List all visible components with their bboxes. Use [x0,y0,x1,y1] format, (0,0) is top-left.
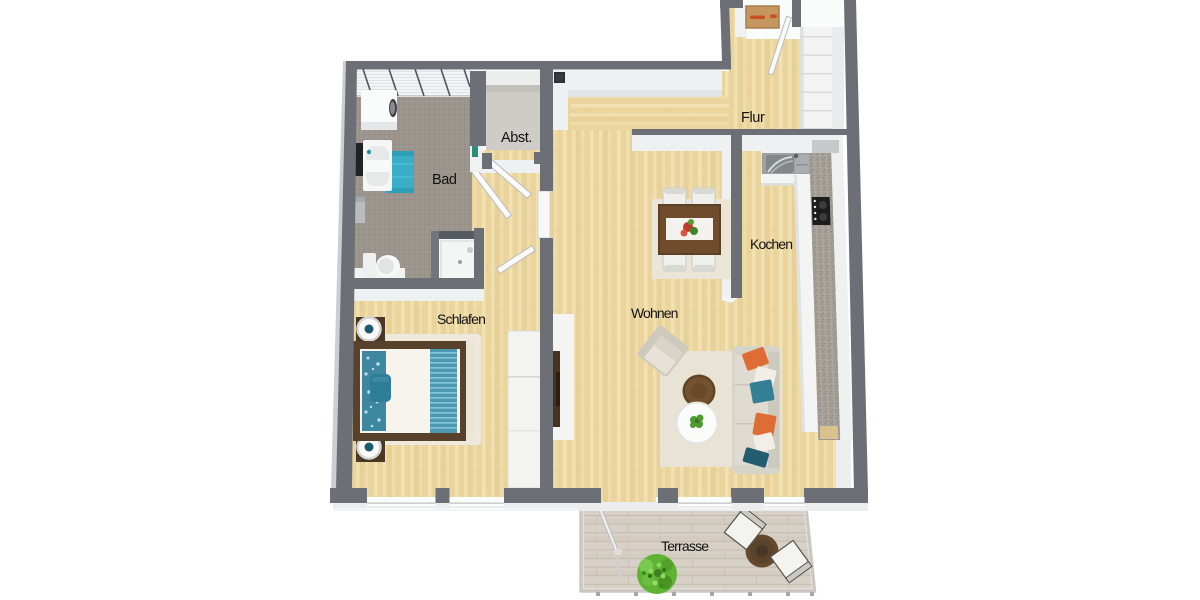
svg-text:Wohnen: Wohnen [631,305,678,321]
svg-text:Kochen: Kochen [750,236,792,252]
svg-text:Bad: Bad [432,172,457,188]
svg-text:Abst.: Abst. [501,130,532,146]
svg-text:Flur: Flur [741,110,765,126]
svg-text:Schlafen: Schlafen [437,311,485,327]
svg-text:Terrasse: Terrasse [661,538,709,554]
